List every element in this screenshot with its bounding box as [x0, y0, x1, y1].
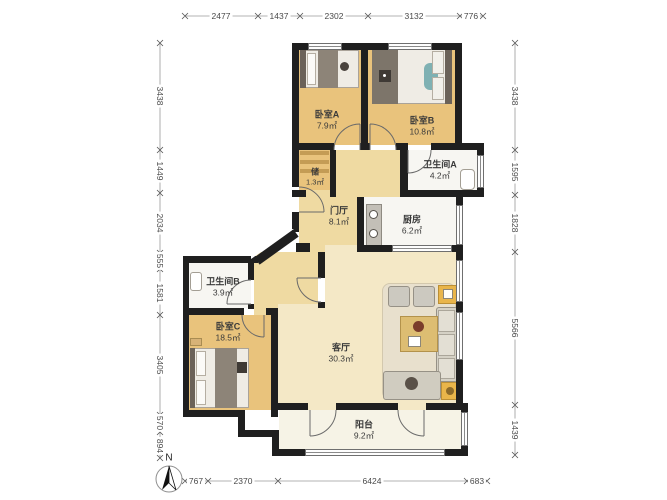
- dim-bottom-0: 767: [187, 476, 205, 486]
- dimension-lines: [157, 13, 518, 484]
- dim-right-4: 1439: [510, 419, 520, 442]
- room-name: 客厅: [328, 343, 353, 354]
- room-name: 阳台: [354, 420, 374, 431]
- label-bathroom-a: 卫生间A 4.2㎡: [423, 160, 457, 181]
- label-balcony: 阳台 9.2㎡: [354, 420, 374, 441]
- north-compass: [156, 466, 182, 492]
- room-name: 储: [306, 168, 324, 178]
- label-bathroom-b: 卫生间B 3.9㎡: [206, 277, 240, 298]
- room-area: 7.9㎡: [315, 120, 340, 130]
- door-symbols: [227, 124, 431, 436]
- room-name: 卫生间A: [423, 160, 457, 171]
- label-bedroom-c: 卧室C 18.5㎡: [215, 322, 240, 343]
- room-area: 10.8㎡: [409, 126, 434, 136]
- door-balcony-right: [398, 410, 424, 436]
- dim-bottom-3: 683: [468, 476, 486, 486]
- label-bedroom-b: 卧室B 10.8㎡: [409, 116, 434, 137]
- door-balcony-left: [310, 410, 336, 436]
- label-foyer: 门厅 8.1㎡: [329, 206, 349, 227]
- dim-left-2: 2034: [155, 212, 165, 235]
- dim-left-7: 894: [155, 437, 165, 455]
- door-entry: [299, 187, 324, 212]
- dim-left-1: 1449: [155, 160, 165, 183]
- dim-top-3: 3132: [403, 11, 426, 21]
- label-kitchen: 厨房 6.2㎡: [402, 215, 422, 236]
- room-area: 1.3㎡: [306, 177, 324, 186]
- dim-right-2: 1828: [510, 212, 520, 235]
- door-bedroom-b: [370, 124, 396, 150]
- dim-left-0: 3438: [155, 85, 165, 108]
- dim-top-0: 2477: [210, 11, 233, 21]
- dim-left-5: 3405: [155, 354, 165, 377]
- dim-right-3: 5566: [510, 317, 520, 340]
- room-area: 3.9㎡: [206, 287, 240, 297]
- room-area: 8.1㎡: [329, 216, 349, 226]
- room-name: 厨房: [402, 215, 422, 226]
- room-area: 9.2㎡: [354, 430, 374, 440]
- north-label: N: [165, 453, 172, 464]
- dim-bottom-1: 2370: [232, 476, 255, 486]
- room-name: 卧室B: [409, 116, 434, 127]
- room-name: 门厅: [329, 206, 349, 217]
- dimension-main-lines: [160, 16, 515, 481]
- compass-arrow-left: [162, 466, 169, 490]
- dim-top-1: 1437: [268, 11, 291, 21]
- dim-bottom-2: 6424: [361, 476, 384, 486]
- dim-left-4: 1581: [155, 282, 165, 305]
- room-name: 卧室A: [315, 110, 340, 121]
- label-bedroom-a: 卧室A 7.9㎡: [315, 110, 340, 131]
- door-bedroom-c: [242, 315, 264, 337]
- dim-right-1: 1595: [510, 161, 520, 184]
- dim-top-2: 2302: [323, 11, 346, 21]
- room-name: 卫生间B: [206, 277, 240, 288]
- room-area: 6.2㎡: [402, 225, 422, 235]
- room-area: 30.3㎡: [328, 353, 353, 363]
- dim-top-4: 776: [462, 11, 480, 21]
- compass-arrow-right: [169, 466, 176, 490]
- floor-plan: 卧室A 7.9㎡ 卧室B 10.8㎡ 储 1.3㎡ 卫生间A 4.2㎡ 门厅 8…: [0, 0, 667, 500]
- dim-right-0: 3438: [510, 85, 520, 108]
- room-area: 4.2㎡: [423, 170, 457, 180]
- room-name: 卧室C: [215, 322, 240, 333]
- label-living-room: 客厅 30.3㎡: [328, 343, 353, 364]
- room-area: 18.5㎡: [215, 332, 240, 342]
- dim-left-3: 555: [155, 252, 165, 270]
- plan-overlay: [0, 0, 667, 500]
- door-corridor: [297, 278, 321, 302]
- dim-left-6: 570: [155, 414, 165, 432]
- label-storage: 储 1.3㎡: [306, 168, 324, 187]
